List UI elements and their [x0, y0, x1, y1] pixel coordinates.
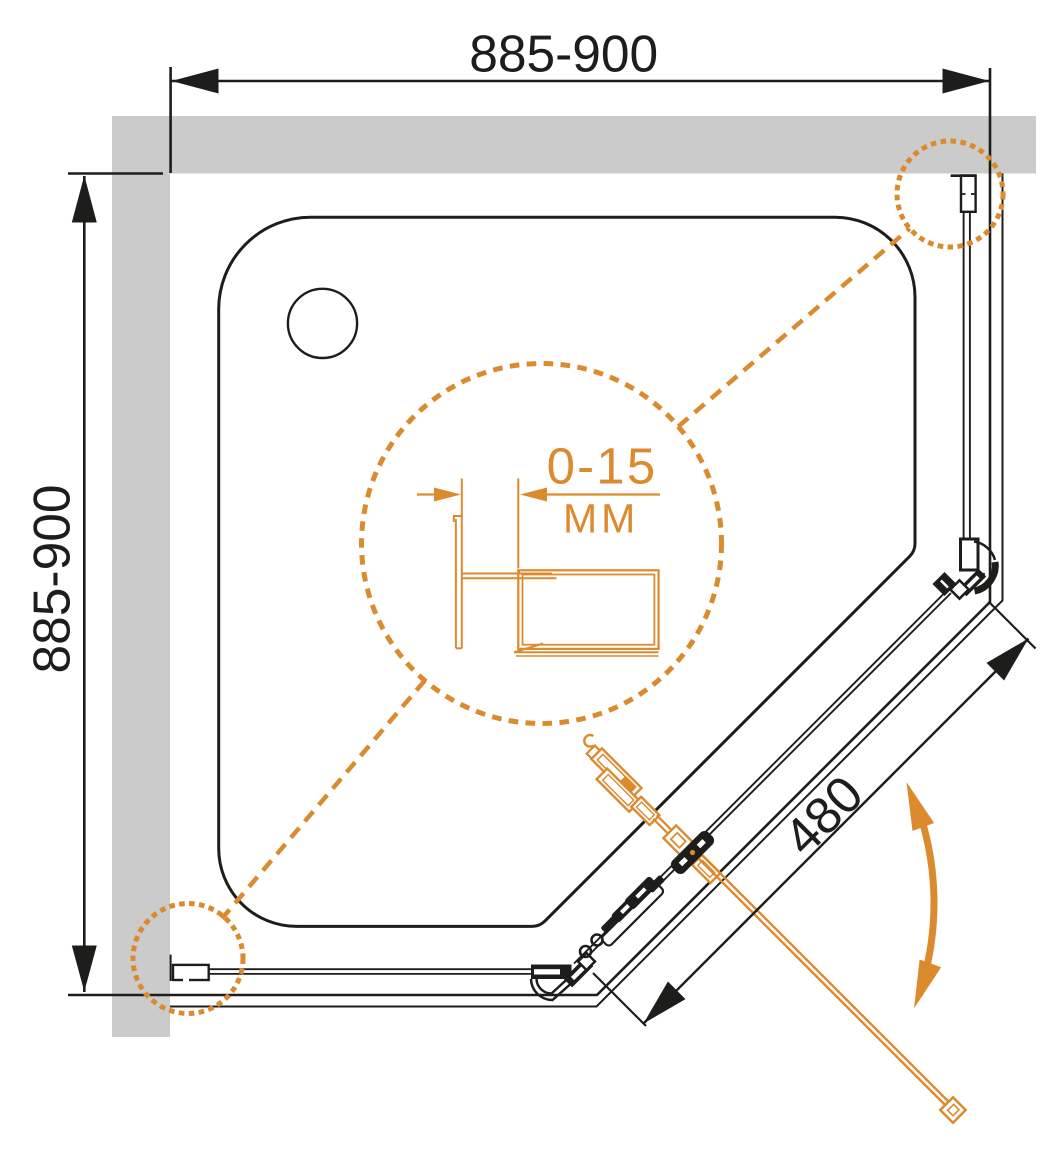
svg-text:MM: MM: [563, 496, 639, 542]
svg-text:885-900: 885-900: [469, 25, 658, 83]
svg-text:0-15: 0-15: [547, 438, 658, 495]
svg-text:885-900: 885-900: [23, 484, 81, 673]
